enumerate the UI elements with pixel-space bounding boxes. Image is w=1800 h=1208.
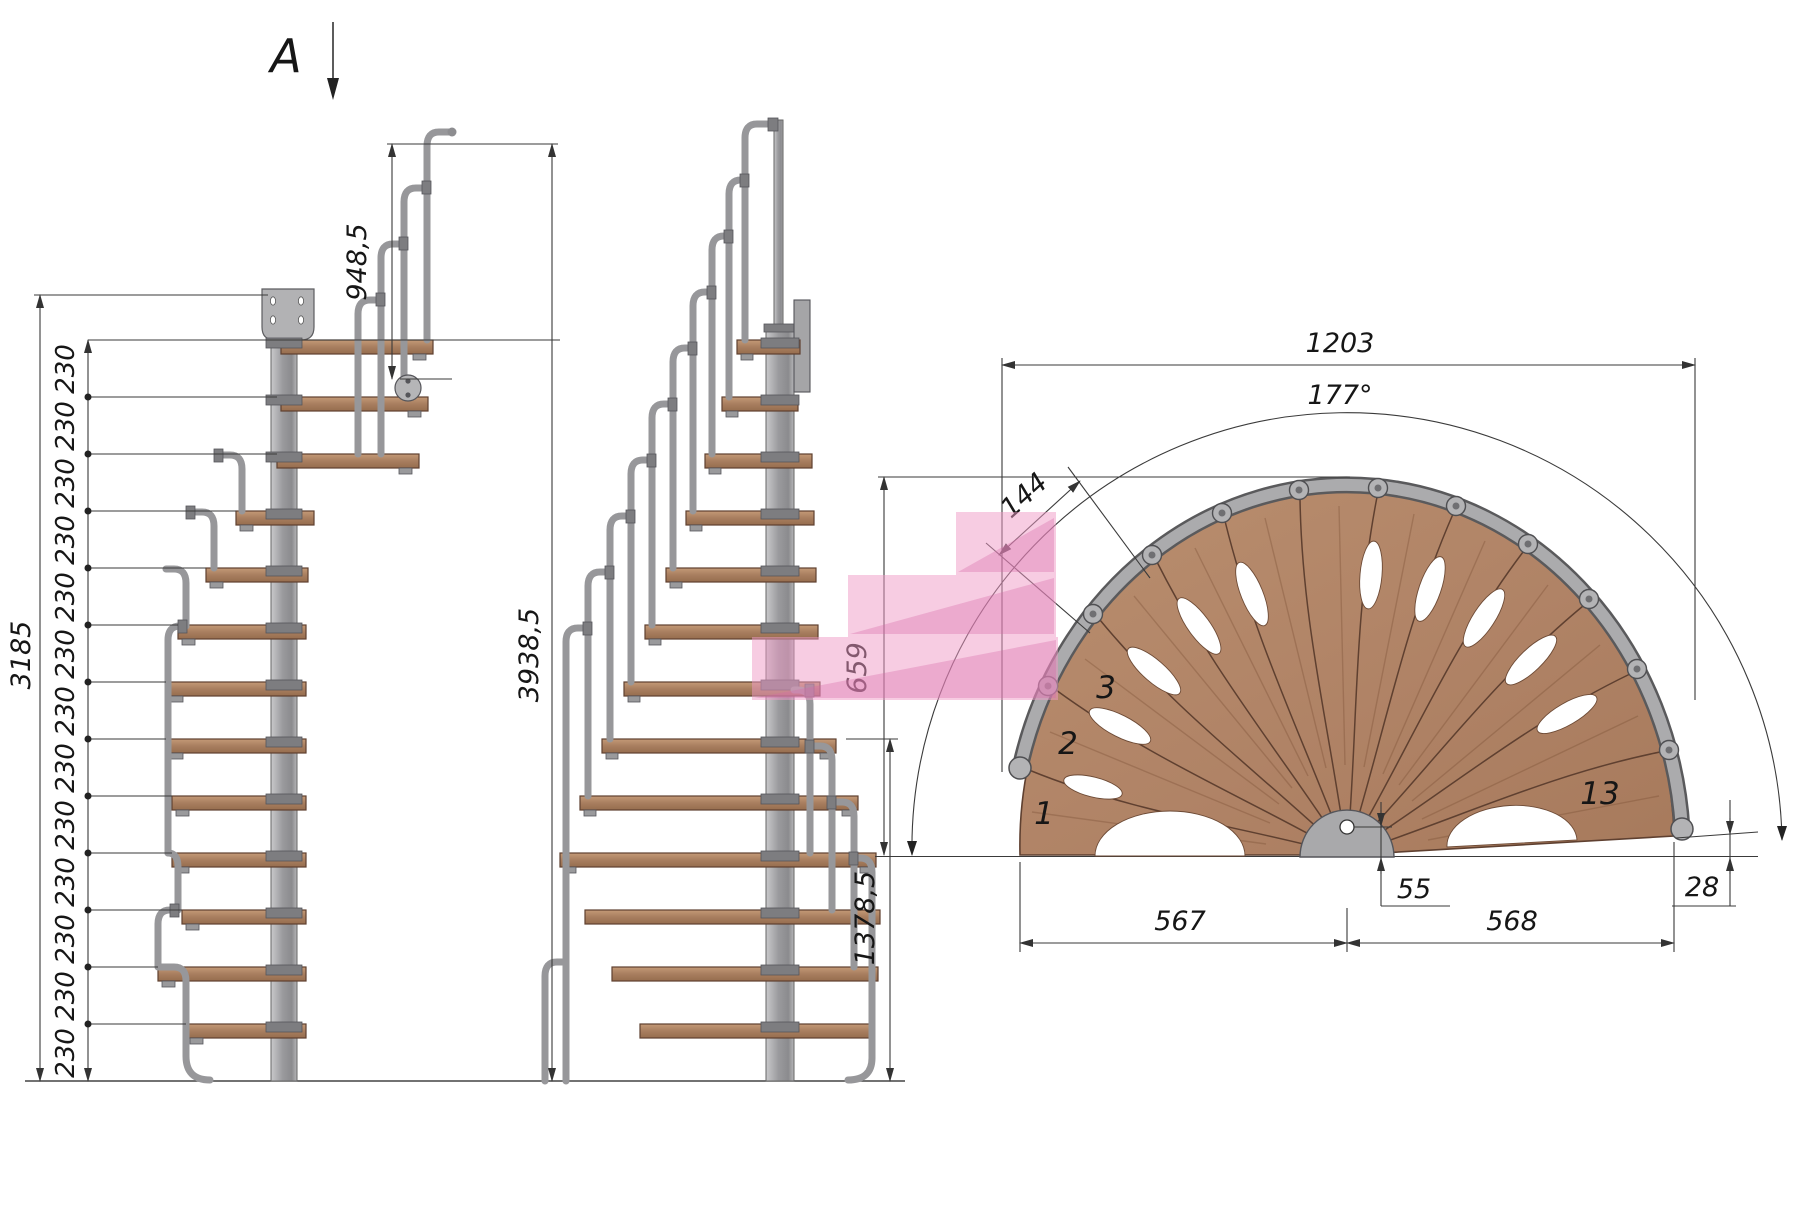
riser-dim: 230 (51, 743, 81, 793)
technical-drawing-sheet: A 3185 230 230 230 230 230 230 230 230 2… (0, 0, 1800, 1208)
riser-dim: 230 (51, 686, 81, 736)
riser-dim: 230 (51, 458, 81, 508)
dim-center-offset: 55 (1397, 874, 1431, 905)
step-number-13: 13 (1580, 776, 1619, 812)
dim-left-span: 567 (1154, 906, 1206, 937)
pole-axis-point (1340, 820, 1354, 834)
dim-railing-height: 948,5 (342, 223, 373, 300)
top-post (774, 120, 783, 332)
staircase-drawing: A 3185 230 230 230 230 230 230 230 230 2… (0, 0, 1800, 1208)
riser-dim-labels: 230 230 230 230 230 230 230 230 230 230 … (51, 344, 81, 1078)
riser-dim: 230 (51, 401, 81, 451)
riser-dim: 230 (51, 971, 81, 1021)
riser-dim: 230 (51, 800, 81, 850)
riser-dim: 230 (51, 857, 81, 907)
dim-edge-drop: 28 (1685, 872, 1719, 903)
step-number-3: 3 (1096, 670, 1116, 706)
dim-overall-height: 3938,5 (514, 608, 545, 702)
riser-dim: 230 (51, 914, 81, 964)
section-arrow (327, 78, 339, 100)
handrail-front-left (545, 118, 778, 1081)
step-number-1: 1 (1034, 796, 1054, 832)
dim-overall-width: 1203 (1306, 328, 1375, 359)
floor-opening-highlight (752, 512, 1058, 700)
riser-dim: 230 (51, 1028, 81, 1078)
dim-right-span: 568 (1486, 906, 1538, 937)
dim-lower-height: 1378,5 (850, 871, 881, 965)
section-label: A (267, 29, 301, 83)
riser-dim: 230 (51, 515, 81, 565)
dim-stair-height: 3185 (6, 621, 37, 690)
step-number-2: 2 (1058, 726, 1078, 762)
spiral-staircase-front-view (545, 118, 880, 1081)
riser-dim: 230 (51, 344, 81, 394)
wall-bracket (262, 289, 314, 340)
riser-dim: 230 (51, 629, 81, 679)
riser-dim: 230 (51, 572, 81, 622)
dim-sweep-angle: 177° (1307, 380, 1372, 411)
